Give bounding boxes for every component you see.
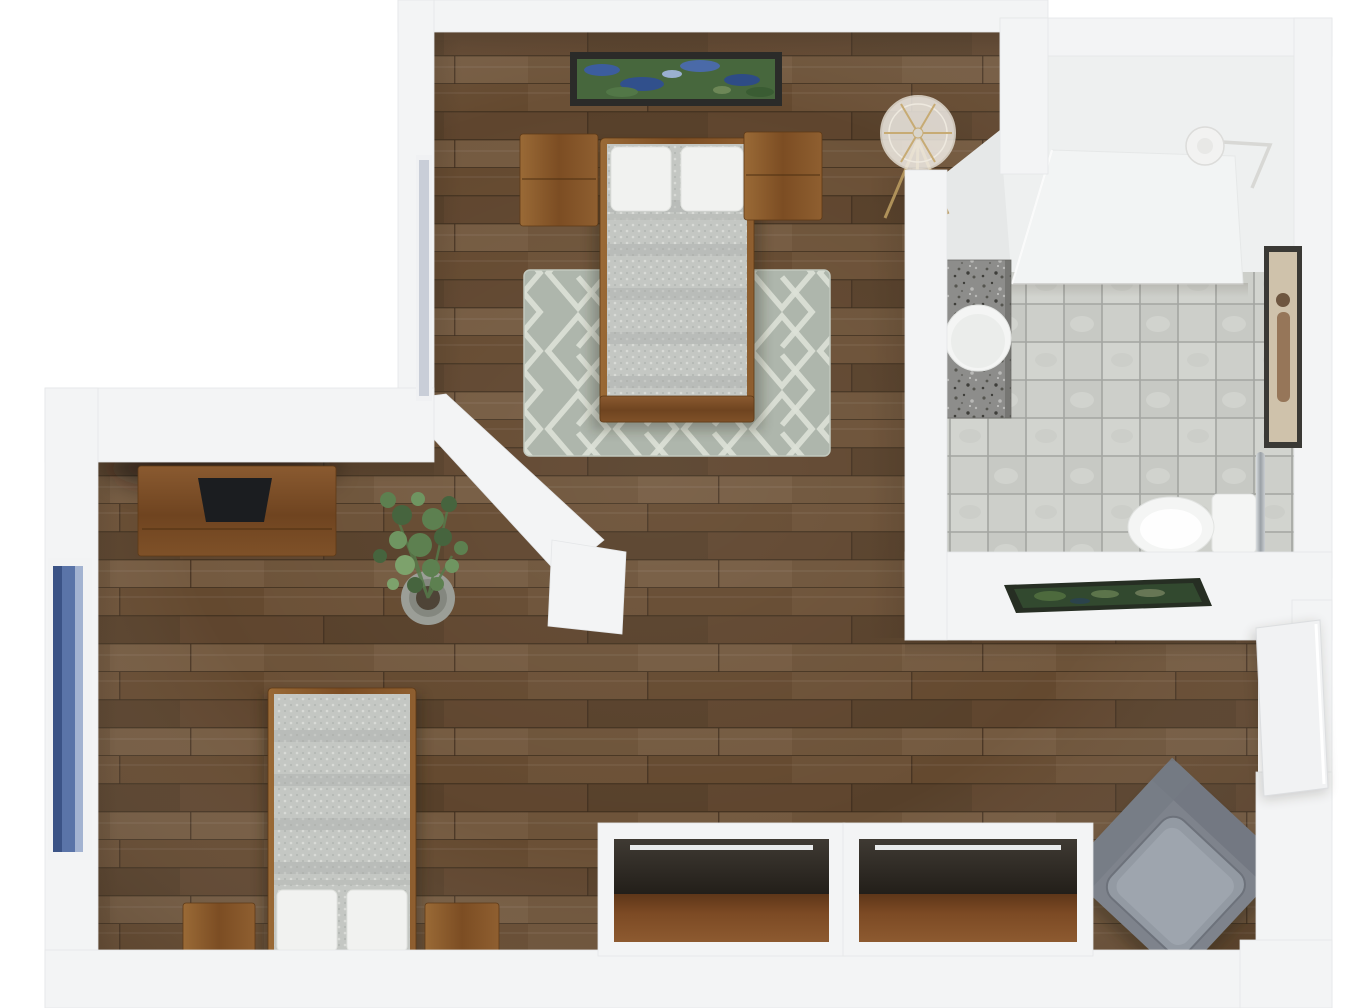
toilet-seat xyxy=(1140,509,1202,549)
stool-left xyxy=(183,903,255,955)
daybed-pillow-right xyxy=(347,890,407,952)
bedroom-north-wall xyxy=(398,0,1048,32)
bed-footboard xyxy=(600,396,754,422)
bathroom-north-wall xyxy=(1000,18,1332,56)
southeast-corner xyxy=(1240,940,1332,1008)
south-exterior-wall xyxy=(45,950,1310,1008)
toilet xyxy=(1128,494,1256,557)
bathwall-shadow xyxy=(869,176,905,638)
hall-wall-shadow xyxy=(905,640,1258,662)
window-glass-sliver xyxy=(419,160,429,396)
bed-pillow-right xyxy=(681,147,743,211)
open-entry-door xyxy=(1252,620,1328,800)
sink-basin xyxy=(951,314,1005,368)
wood-sill xyxy=(614,894,829,942)
daybed xyxy=(262,688,422,960)
vanity xyxy=(945,260,1011,418)
bathroom-west-wall xyxy=(905,170,947,640)
floor-plan-canvas xyxy=(0,0,1359,1008)
left-wall-shadow xyxy=(98,470,118,950)
waterlilies-wall-art xyxy=(570,52,782,106)
blanket-fold xyxy=(274,880,410,885)
bathroom-doorway-wall xyxy=(1000,18,1048,174)
tall-blue-window xyxy=(48,558,92,860)
livingroom-north-wall xyxy=(45,388,434,462)
window-recess-left xyxy=(598,823,845,956)
floor-plan xyxy=(0,0,1359,1008)
diagonal-wall-end xyxy=(548,540,626,634)
wood-sill xyxy=(859,894,1077,942)
daybed-pillow-left xyxy=(277,890,337,952)
bedroom-wall-shadow xyxy=(434,32,1000,54)
stool-right xyxy=(425,903,499,955)
window-recess-right xyxy=(843,823,1093,956)
toilet-tank xyxy=(1212,494,1256,554)
blanket-fold xyxy=(607,214,747,220)
grab-bar xyxy=(1256,452,1265,554)
console-seam xyxy=(142,528,332,530)
portrait-wall-art xyxy=(1264,246,1302,448)
west-wall-shadow xyxy=(434,40,462,420)
bed-pillow-left xyxy=(611,147,671,211)
curtain-rod xyxy=(630,845,813,850)
bedroom-west-window xyxy=(416,155,432,401)
tub-shadow xyxy=(1008,283,1248,297)
flat-tv xyxy=(198,478,272,522)
curtain-rod xyxy=(875,845,1061,850)
